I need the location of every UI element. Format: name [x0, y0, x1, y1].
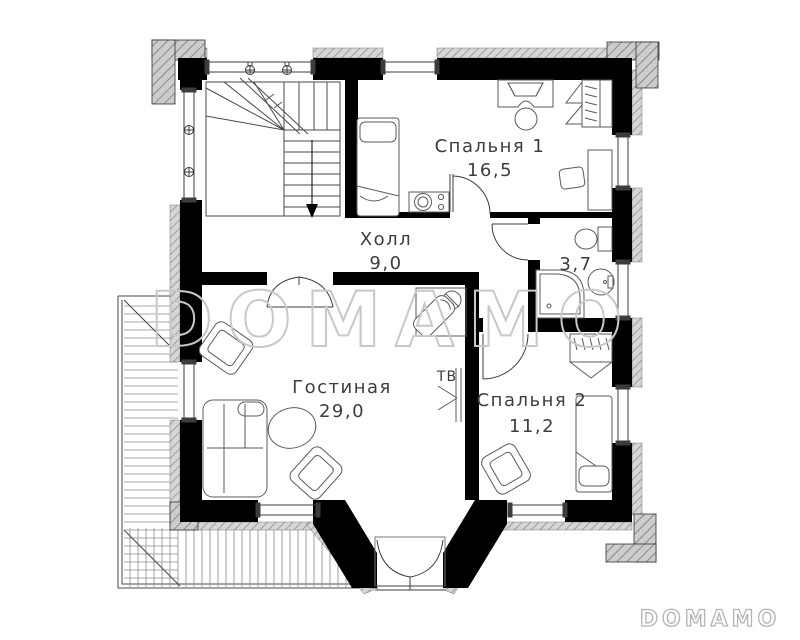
chair: [559, 166, 586, 189]
label-tv: ТВ: [436, 369, 457, 385]
label-living-name: Гостиная: [292, 377, 392, 398]
floor-plan-drawing: Спальня 1 16,5 Холл 9,0 3,7 Гостиная 29,…: [0, 0, 800, 640]
label-hall-name: Холл: [360, 229, 412, 250]
watermark-center: DOMAMO: [150, 275, 636, 364]
window-living-bottom: [256, 503, 320, 517]
wardrobe-bedroom1: [566, 80, 612, 127]
casement-symbol-icon: [185, 168, 194, 177]
label-bedroom1-area: 16,5: [467, 160, 513, 181]
door-bathroom: [492, 224, 528, 260]
coffee-table-oval: [264, 402, 321, 453]
watermark-logo-corner: DOMAMO: [640, 607, 780, 632]
wardrobe-chevron-icon: [566, 82, 582, 124]
toilet-icon: [575, 227, 612, 251]
door-entrance-terrace: [375, 537, 445, 590]
casement-symbol-icon: [185, 126, 194, 135]
armchair-bedroom2: [479, 441, 533, 496]
casement-symbol-icon: [246, 62, 255, 75]
desk-chair: [515, 108, 537, 130]
label-bathroom-area: 3,7: [559, 254, 592, 275]
label-bedroom1-name: Спальня 1: [435, 136, 546, 157]
window-stairs-top: [205, 60, 315, 75]
wardrobe-chevron-icon: [570, 362, 612, 378]
floor-plan-page: Спальня 1 16,5 Холл 9,0 3,7 Гостиная 29,…: [0, 0, 800, 640]
window-bedroom2-bottom: [508, 503, 567, 517]
label-hall-area: 9,0: [369, 253, 402, 274]
window-bedroom1-right: [616, 133, 630, 190]
label-living-area: 29,0: [319, 401, 365, 422]
window-bedroom1-top: [381, 60, 439, 74]
stair-winders: [206, 82, 284, 130]
staircase: [206, 78, 340, 218]
dressing-table: [559, 150, 612, 210]
sofa: [203, 400, 267, 497]
bed-single-1: [357, 118, 399, 216]
casement-symbol-icon: [283, 62, 292, 75]
window-bedroom2-right: [616, 385, 630, 445]
stair-break-line: [240, 78, 308, 134]
label-bedroom2-name: Спальня 2: [477, 390, 588, 411]
window-living-left: [182, 360, 196, 422]
window-stairs-left: [182, 88, 196, 202]
desk-computer: [498, 80, 553, 130]
label-bedroom2-area: 11,2: [509, 416, 555, 437]
armchair-living-bottom: [287, 444, 345, 502]
washstand: [409, 192, 449, 212]
